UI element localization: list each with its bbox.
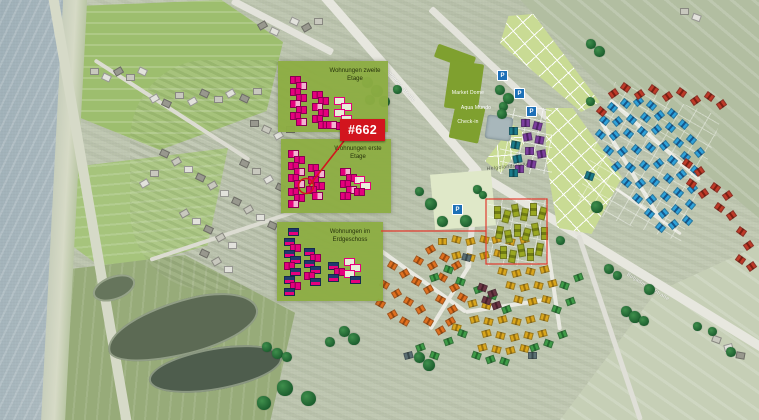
- tree-icon: [591, 201, 603, 213]
- village-building: [680, 8, 689, 15]
- olive-apartments-house-icon[interactable]: [514, 224, 521, 237]
- apartment-unit-icon[interactable]: [354, 188, 365, 196]
- tree-icon: [497, 109, 507, 119]
- tree-icon: [425, 198, 437, 210]
- panel-title: Wohnungen erste Etage: [330, 146, 386, 162]
- tree-icon: [282, 352, 292, 362]
- village-building: [256, 214, 265, 221]
- village-building: [90, 68, 99, 75]
- tree-icon: [644, 284, 655, 295]
- village-building: [253, 88, 262, 95]
- purple-house-icon[interactable]: [534, 135, 544, 144]
- village-building: [175, 92, 184, 99]
- facility-label-check-in: Check-in: [448, 119, 488, 125]
- apartment-unit-icon[interactable]: [328, 274, 339, 282]
- holiday-park-site-plan-map: Market Dome Aqua Mundo Check-in PPPP But…: [0, 0, 759, 420]
- apartment-unit-icon[interactable]: [296, 118, 307, 126]
- parking-marker: P: [514, 88, 525, 99]
- tree-icon: [639, 316, 649, 326]
- tree-icon: [272, 348, 283, 359]
- village-building: [192, 218, 201, 225]
- apartment-unit-icon[interactable]: [310, 278, 321, 286]
- purple-house-icon[interactable]: [536, 149, 546, 158]
- tree-icon: [262, 342, 272, 352]
- apartment-unit-icon[interactable]: [294, 180, 305, 188]
- purple-house-icon[interactable]: [522, 132, 532, 141]
- tree-icon: [613, 271, 622, 280]
- parking-marker: P: [497, 70, 508, 81]
- apartment-unit-icon[interactable]: [340, 192, 351, 200]
- teal-house-icon[interactable]: [510, 140, 520, 149]
- floor-panel-first-floor: Wohnungen erste Etage: [281, 139, 391, 213]
- tree-icon: [556, 236, 565, 245]
- olive-apartments-house-icon[interactable]: [500, 246, 507, 259]
- apartment-unit-icon[interactable]: [326, 121, 337, 129]
- village-building: [220, 190, 229, 197]
- teal-house-icon[interactable]: [509, 169, 518, 177]
- olive-apartments-house-icon[interactable]: [530, 203, 537, 216]
- village-building: [252, 168, 261, 175]
- tree-icon: [348, 333, 360, 345]
- olive-apartments-house-icon[interactable]: [494, 206, 501, 219]
- village-building: [314, 18, 323, 25]
- tree-icon: [594, 46, 605, 57]
- olive-apartments-house-icon[interactable]: [527, 248, 534, 261]
- apartment-unit-icon[interactable]: [290, 268, 301, 276]
- village-building: [735, 351, 745, 359]
- village-building: [228, 242, 237, 249]
- village-building: [126, 74, 135, 81]
- teal-house-icon[interactable]: [509, 127, 518, 135]
- apartment-unit-icon[interactable]: [284, 288, 295, 296]
- village-building: [250, 120, 259, 127]
- panel-title: Wohnungen zweite Etage: [327, 68, 383, 84]
- tree-icon: [437, 216, 448, 227]
- panel-title: Wohnungen im Erdgeschoss: [322, 229, 378, 245]
- tree-icon: [708, 327, 717, 336]
- tree-icon: [415, 187, 424, 196]
- yellow-house-icon[interactable]: [438, 238, 447, 245]
- tree-icon: [301, 391, 316, 406]
- purple-house-icon[interactable]: [521, 119, 530, 127]
- parking-marker: P: [452, 204, 463, 215]
- tree-icon: [257, 396, 271, 410]
- apartment-unit-icon[interactable]: [350, 276, 361, 284]
- village-building: [184, 166, 193, 173]
- tree-icon: [277, 380, 293, 396]
- tree-icon: [479, 191, 487, 199]
- facility-label-market-dome: Market Dome: [450, 90, 486, 96]
- slate-house-icon[interactable]: [528, 352, 537, 359]
- village-building: [214, 96, 223, 103]
- village-building: [150, 170, 159, 177]
- tree-icon: [460, 215, 472, 227]
- facility-label-aqua-mundo: Aqua Mundo: [454, 105, 498, 111]
- village-building: [224, 266, 233, 273]
- tree-icon: [586, 97, 595, 106]
- unit-callout-662[interactable]: #662: [340, 119, 385, 141]
- purple-house-icon[interactable]: [525, 147, 534, 155]
- tree-icon: [693, 322, 702, 331]
- apartment-unit-icon[interactable]: [288, 228, 299, 236]
- tree-icon: [423, 359, 435, 371]
- teal-house-icon[interactable]: [512, 154, 522, 163]
- olive-apartments-house-icon[interactable]: [541, 227, 548, 240]
- tree-icon: [393, 85, 402, 94]
- floor-panel-ground-floor: Wohnungen im Erdgeschoss: [277, 222, 383, 301]
- apartment-unit-icon[interactable]: [312, 192, 323, 200]
- parking-marker: P: [526, 106, 537, 117]
- apartment-unit-icon[interactable]: [288, 200, 299, 208]
- purple-house-icon[interactable]: [526, 159, 536, 168]
- tree-icon: [726, 347, 736, 357]
- tree-icon: [325, 337, 335, 347]
